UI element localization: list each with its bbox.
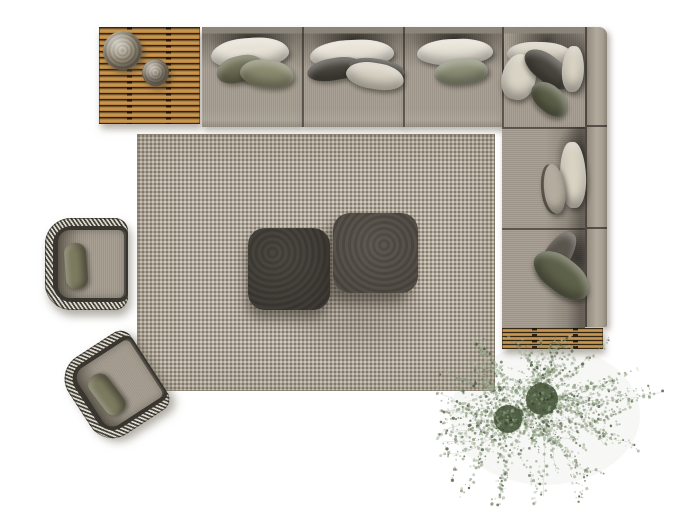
armrest-seam xyxy=(587,227,607,229)
slatted-wood-bench xyxy=(99,27,200,124)
scene xyxy=(0,0,690,518)
armrest-seam xyxy=(587,125,607,127)
slat-notches xyxy=(532,328,537,349)
slatted-wood-platform xyxy=(502,328,603,349)
armchair-top xyxy=(45,218,128,310)
chair-pillow-olive xyxy=(63,242,88,289)
knitted-pouf-large xyxy=(103,31,142,70)
knitted-pouf-small xyxy=(142,59,169,86)
coffee-table-large xyxy=(333,213,418,293)
slat-notches xyxy=(573,328,578,349)
coffee-table-small xyxy=(248,228,330,310)
